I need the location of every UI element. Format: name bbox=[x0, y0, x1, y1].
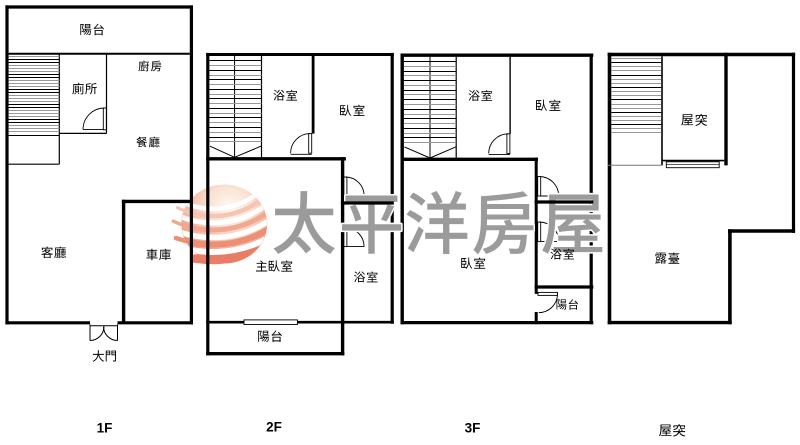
svg-text:3F: 3F bbox=[465, 421, 481, 436]
svg-text:1F: 1F bbox=[97, 421, 113, 436]
svg-text:2F: 2F bbox=[266, 420, 282, 435]
